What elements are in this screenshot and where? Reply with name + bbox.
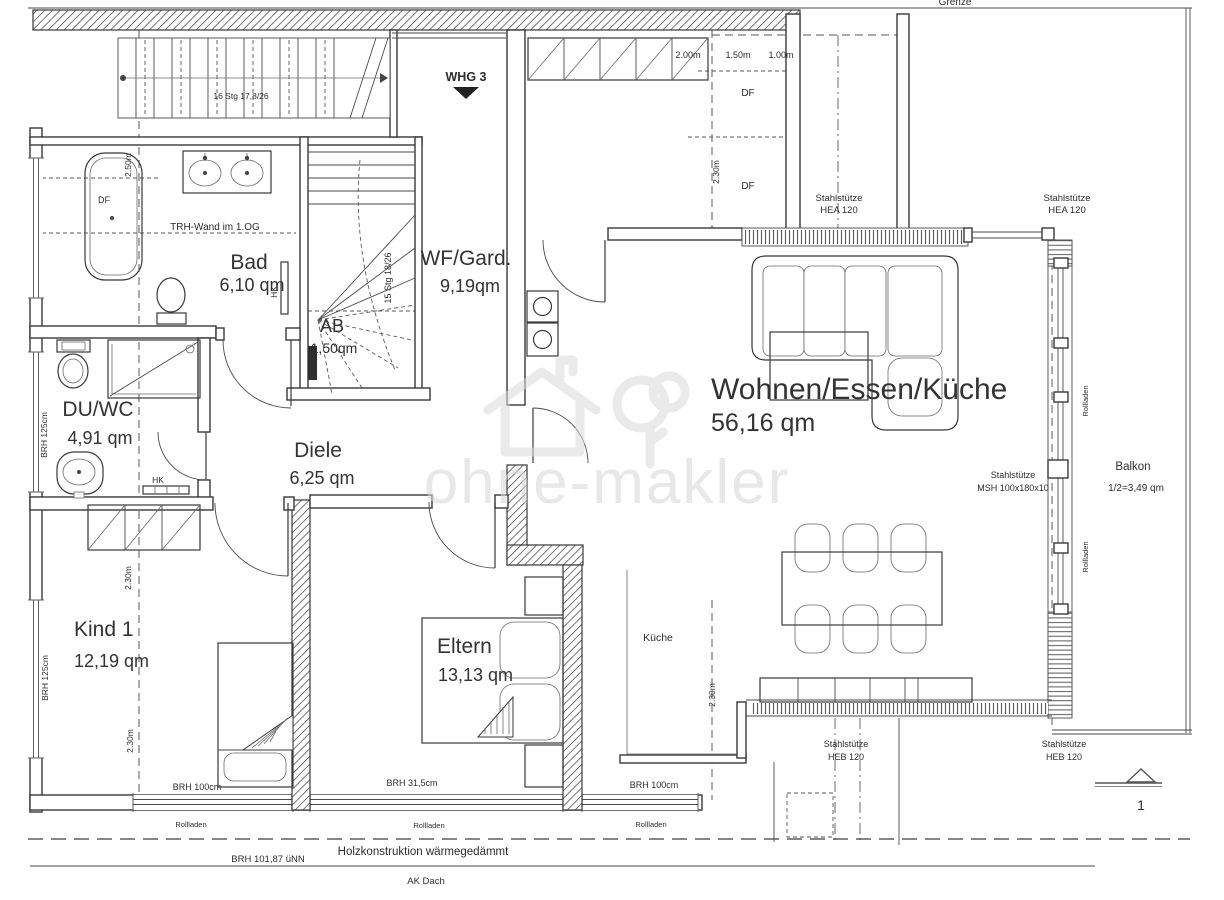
room-diele-area: 6,25 qm (289, 468, 354, 488)
room-ab-area: 1,50qm (311, 340, 358, 356)
note-ak-dach: AK Dach (407, 876, 445, 887)
room-bad-name: Bad (230, 251, 267, 274)
dim-230-c: 2.30m (125, 729, 135, 753)
column-hea-2-line1: Stahlstütze (1044, 193, 1091, 204)
sill-brh125-b: BRH 125cm (40, 655, 50, 701)
window-bad (28, 158, 44, 298)
radiator-label-bad: HK (269, 286, 279, 298)
dim-230-a: 2.30m (711, 160, 721, 184)
column-hea-1-line1: Stahlstütze (816, 193, 863, 204)
radiator-label-diele: HK (152, 475, 164, 485)
wall-kind1-eltern (292, 500, 310, 810)
dim-150: 1.50m (725, 50, 750, 60)
rollladen-band-north (745, 230, 965, 244)
column-msh-line2: MSH 100x180x10 (977, 483, 1049, 493)
trh-note: TRH-Wand im 1.OG (170, 222, 260, 233)
dim-100: 1.00m (768, 50, 793, 60)
rollladen-band-south (752, 703, 1048, 714)
apartment-label: WHG 3 (446, 70, 487, 84)
floor-plan-drawing: 1 Grenze WHG 3 2.00m 1.50m 1.00m DF DF 2… (0, 0, 1224, 900)
room-balkon-name: Balkon (1115, 461, 1150, 473)
df-label-2: DF (741, 181, 754, 192)
terrace-wall-left (786, 14, 800, 232)
window-bottom-1 (133, 793, 293, 812)
room-balkon-area: 1/2=3,49 qm (1108, 483, 1164, 494)
terrace-wall-right (897, 14, 909, 232)
dim-230-b: 2.30m (123, 566, 133, 590)
wall-eltern-kueche (563, 565, 582, 810)
df-label-1: DF (741, 88, 754, 99)
sill-brh125-a: BRH 125cm (39, 412, 49, 458)
watermark-text: ohne-makler (424, 448, 791, 517)
column-heb-1-line2: HEB 120 (828, 752, 864, 762)
column-hea-2-line2: HEA 120 (1048, 205, 1086, 216)
room-ab-name: AB (320, 316, 344, 336)
stair-upper-label: 16 Stg 17,8/26 (213, 91, 269, 101)
grenze-label: Grenze (939, 0, 972, 8)
rollladen-bottom-3: Rollladen (635, 820, 666, 829)
top-exterior-wall (33, 10, 800, 30)
dim-250: 2.50m (123, 153, 133, 177)
room-duwc-name: DU/WC (62, 398, 133, 421)
rollladen-box-bottom (1048, 612, 1072, 718)
room-wf-area: 9,19qm (440, 276, 500, 296)
sill-brh315: BRH 31,5cm (386, 778, 437, 788)
sill-brh-unn: BRH 101,87 üNN (231, 854, 305, 865)
column-heb-2-line2: HEB 120 (1046, 752, 1082, 762)
room-kueche-name: Küche (643, 632, 673, 644)
column-heb-1-line1: Stahlstütze (824, 739, 869, 749)
rollladen-bottom-2: Rollladen (413, 821, 444, 830)
section-number: 1 (1137, 797, 1145, 813)
floor-plan-page: 1 Grenze WHG 3 2.00m 1.50m 1.00m DF DF 2… (0, 0, 1224, 900)
sill-brh100-b: BRH 100cm (630, 780, 679, 790)
window-bottom-3 (582, 793, 698, 812)
column-heb-2-line1: Stahlstütze (1042, 739, 1087, 749)
window-bottom-2 (310, 793, 563, 812)
note-holzkonstruktion: Holzkonstruktion wärmegedämmt (338, 846, 509, 858)
column-msh-line1: Stahlstütze (991, 470, 1036, 480)
stair-inner-label: 15 Stg 18/26 (383, 252, 393, 303)
dim-230-d: 2.30m (707, 683, 717, 707)
room-wf-name: WF/Gard. (420, 247, 511, 270)
wall-living-north (608, 228, 742, 240)
room-diele-name: Diele (294, 439, 342, 462)
wall-living-west (507, 30, 525, 405)
bottom-wall-windows (133, 793, 698, 812)
column-hea-1-line2: HEA 120 (820, 205, 858, 216)
room-wohnen-name: Wohnen/Essen/Küche (711, 373, 1007, 406)
rollladen-right-1: Rollladen (1081, 385, 1090, 416)
rollladen-right-2: Rollladen (1081, 541, 1090, 572)
room-eltern-name: Eltern (437, 635, 492, 658)
rollladen-bottom-1: Rollladen (175, 820, 206, 829)
room-duwc-area: 4,91 qm (67, 428, 132, 448)
room-eltern-area: 13,13 qm (438, 665, 513, 685)
df-label-bad: DF (98, 195, 110, 205)
room-kind1-name: Kind 1 (74, 618, 134, 641)
sill-brh100-a: BRH 100cm (173, 782, 222, 792)
dim-200: 2.00m (675, 50, 700, 60)
stairwell-upper (118, 38, 390, 118)
room-kind1-area: 12,19 qm (74, 651, 149, 671)
room-wohnen-area: 56,16 qm (711, 409, 815, 437)
